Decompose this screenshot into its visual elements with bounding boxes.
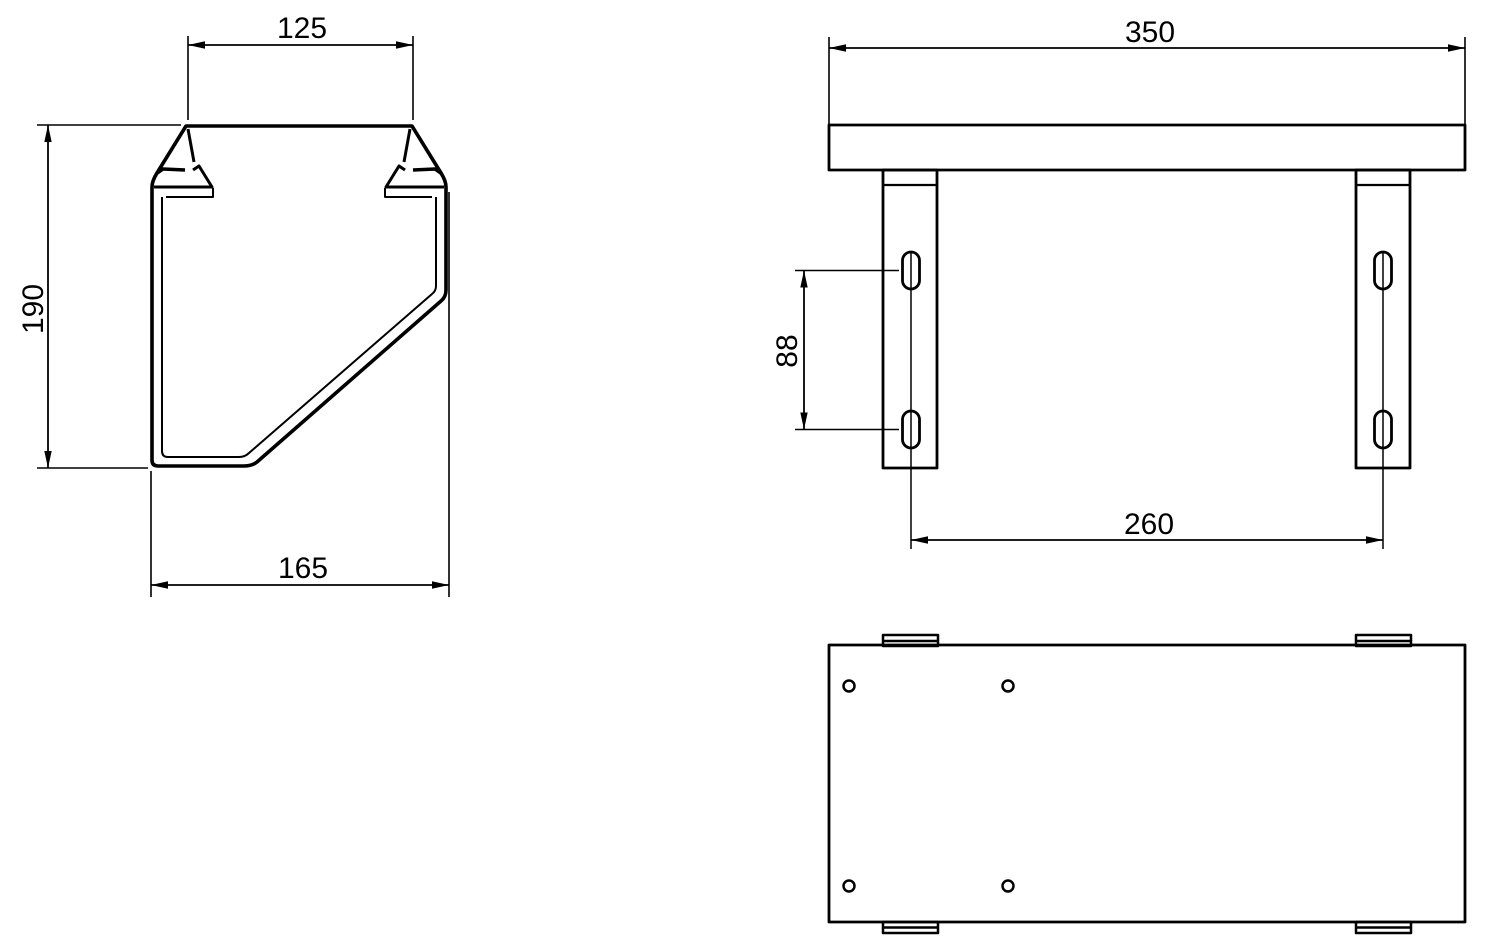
arrow-left-icon <box>829 44 846 51</box>
arrow-right-icon <box>1448 44 1465 51</box>
front-left-bracket <box>883 170 937 468</box>
technical-drawing: 125 190 165 <box>0 0 1511 945</box>
side-profile-view: 125 190 165 <box>17 12 449 597</box>
dim-bracket-spacing-label: 260 <box>1124 508 1174 541</box>
arrow-up-icon <box>800 271 807 288</box>
plan-hole-top-right <box>1003 681 1014 692</box>
front-plate <box>829 125 1465 170</box>
plan-hole-bottom-left <box>844 881 855 892</box>
profile-inner-contour <box>162 197 436 457</box>
plan-hole-bottom-right <box>1003 881 1014 892</box>
profile-outer-contour <box>152 126 446 466</box>
arrow-down-icon <box>800 413 807 430</box>
left-clip-tail <box>156 169 185 174</box>
dim-bottom-width-label: 165 <box>278 552 328 585</box>
left-clip-base <box>154 129 212 187</box>
top-plan-view <box>829 635 1465 933</box>
right-clip-tail <box>413 169 442 174</box>
dim-bottom-width: 165 <box>151 192 449 597</box>
right-clip-base <box>386 129 444 187</box>
plan-hole-top-left <box>844 681 855 692</box>
arrow-down-icon <box>44 451 51 468</box>
plan-tab-bottom-left <box>883 922 938 933</box>
plan-plate <box>829 645 1465 922</box>
right-clip-foot <box>385 188 432 197</box>
arrow-right-icon <box>396 41 413 48</box>
dim-top-width: 125 <box>188 12 413 120</box>
arrow-left-icon <box>911 536 928 543</box>
dim-slot-spacing-label: 88 <box>771 334 804 367</box>
dim-slot-spacing: 88 <box>771 271 899 430</box>
drawing-canvas: 125 190 165 <box>0 0 1511 945</box>
dim-overall-width: 350 <box>829 16 1465 124</box>
arrow-left-icon <box>151 581 168 588</box>
dim-overall-width-label: 350 <box>1125 16 1175 49</box>
arrow-right-icon <box>432 581 449 588</box>
front-view: 350 88 260 <box>771 16 1465 549</box>
arrow-right-icon <box>1366 536 1383 543</box>
dim-top-width-label: 125 <box>277 12 327 45</box>
dim-height-label: 190 <box>17 284 50 334</box>
dim-bracket-spacing: 260 <box>911 508 1383 544</box>
plan-tab-bottom-right <box>1356 922 1411 933</box>
left-clip-foot <box>166 188 213 197</box>
arrow-up-icon <box>44 125 51 142</box>
arrow-left-icon <box>188 41 205 48</box>
